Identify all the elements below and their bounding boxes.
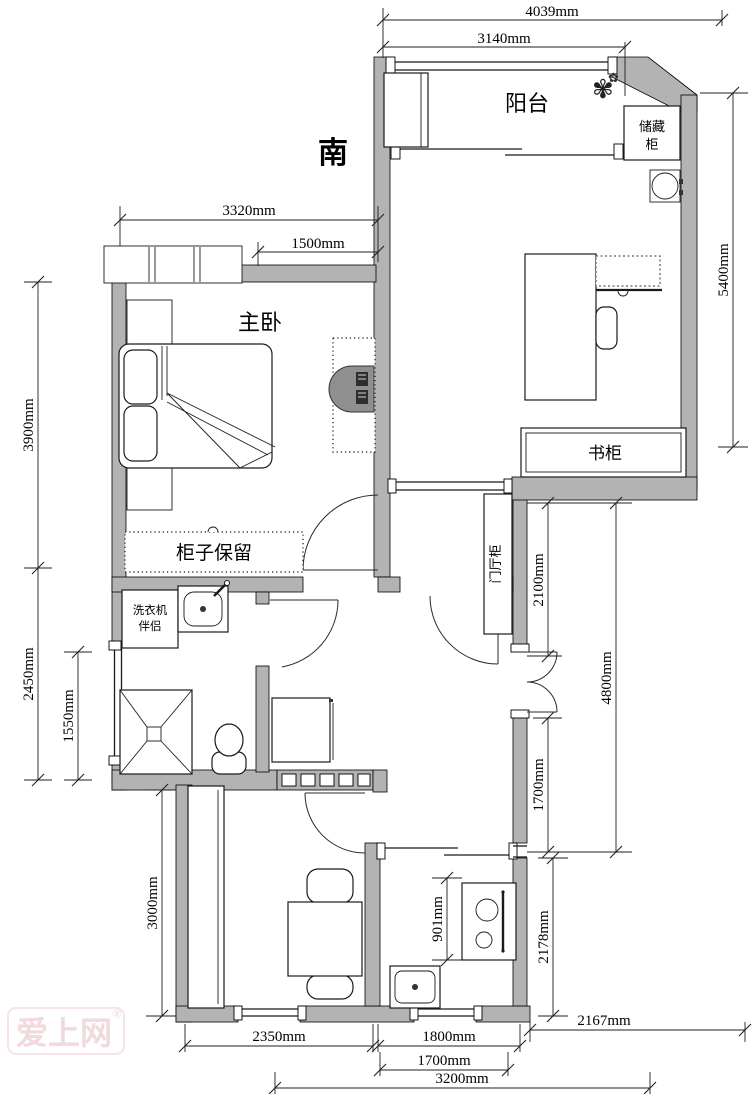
keep-cabinet-label: 柜子保留 [176,542,252,564]
svg-text:1800mm: 1800mm [422,1029,476,1045]
svg-text:1700mm: 1700mm [417,1053,471,1069]
dim-hall-full: 4800mm [599,497,622,858]
dim-hall-upper: 2100mm [531,497,554,662]
svg-text:1550mm: 1550mm [61,689,77,743]
stove [462,883,516,960]
dim-bedroom-top: 3320mm [114,203,384,226]
dim-top-outer: 4039mm [377,4,728,26]
wall-bath-divider [256,666,269,772]
wall-living-bottom [512,477,697,500]
wall-hall-right-upper [513,490,527,646]
floor-plan-page: ✾ ✿ [0,0,756,1094]
svg-text:2167mm: 2167mm [577,1013,631,1029]
dim-left-inner: 1550mm [61,646,84,786]
svg-text:2450mm: 2450mm [21,647,37,701]
svg-text:1500mm: 1500mm [291,236,345,252]
dim-bedroom-top-right: 1500mm [252,236,384,258]
svg-text:®: ® [112,1006,122,1021]
entry-double-door [511,644,557,718]
living-pass-window [388,479,512,493]
dim-room-bottom: 2350mm [179,1029,379,1052]
wall-bedroom-top [240,265,376,282]
toilet [212,724,246,774]
wall-kitchen-divider [365,843,380,1006]
wall-hall-right-mid [513,712,527,843]
pillow [124,406,157,461]
kitchen-sink [390,966,440,1008]
pillow [124,350,157,404]
storage-cabinet-label-line2: 柜 [645,137,658,152]
bay-window [104,246,242,283]
chair [307,975,353,999]
corridor-cabinet [272,698,333,762]
svg-text:901mm: 901mm [430,896,446,942]
tv-cabinet [329,338,375,452]
shower [120,690,192,774]
storage-cabinet-label-line1: 储藏 [639,119,665,134]
washer-label-line1: 洗衣机 [133,603,168,617]
svg-text:爱上网: 爱上网 [16,1015,112,1051]
master-bedroom-door [303,495,378,570]
bath-sink [178,581,230,633]
dim-kitchen-right: 2178mm [536,852,559,1022]
kitchen-sliding-door [377,843,517,859]
dim-left-upper: 3900mm [21,276,44,574]
compass-south-label: 南 [318,137,348,170]
plant-icon: ✾ ✿ [592,70,619,104]
svg-text:3140mm: 3140mm [477,31,531,47]
svg-text:3000mm: 3000mm [145,876,161,930]
dim-kitchen-bottom: 1800mm [372,1029,526,1052]
washer-label-line2: 伴侣 [139,619,162,633]
svg-text:3320mm: 3320mm [222,203,276,219]
svg-text:3200mm: 3200mm [435,1071,489,1087]
svg-text:2100mm: 2100mm [531,553,547,607]
balcony-cabinet [384,73,428,147]
dining-table [288,869,362,999]
balcony-label: 阳台 [505,91,549,116]
wall-bottom-seg3 [476,1006,530,1022]
wall-bedroom-bottom-post [378,577,400,592]
balcony-top-window [386,57,617,74]
wall-post-room-door [373,770,387,792]
wall-bath-divider-top [256,592,269,604]
dim-room-left: 3000mm [145,784,168,1022]
dim-left-middle: 2450mm [21,568,44,786]
dim-bottom-span: 3200mm [269,1071,656,1094]
washer-cabinet [122,590,178,648]
chair [307,869,353,903]
svg-text:5400mm: 5400mm [716,243,732,297]
master-bedroom-label: 主卧 [238,310,282,335]
bottom-room-door [305,793,365,853]
dim-kitchen-inner: 901mm [430,872,453,966]
dim-top-inner: 3140mm [377,31,631,53]
dim-hall-lower: 1700mm [531,712,554,858]
svg-text:✿: ✿ [608,70,619,85]
wall-shelf [596,256,662,296]
bathroom-door [270,600,338,667]
svg-text:3900mm: 3900mm [21,398,37,452]
room-bottom-window [234,1006,306,1020]
svg-text:2178mm: 2178mm [536,910,552,964]
svg-text:1700mm: 1700mm [531,758,547,812]
bookcase-label: 书柜 [588,444,622,463]
svg-text:2350mm: 2350mm [252,1029,306,1045]
dim-right-upper: 5400mm [716,87,739,453]
water-heater [650,170,683,202]
svg-text:4039mm: 4039mm [525,4,579,20]
watermark: 爱上网 ® [8,1006,124,1054]
svg-text:4800mm: 4800mm [599,651,615,705]
floor-plan-drawing: ✾ ✿ [0,0,756,1094]
entry-cabinet-label: 门厅柜 [488,544,503,583]
wardrobe [188,786,224,1008]
